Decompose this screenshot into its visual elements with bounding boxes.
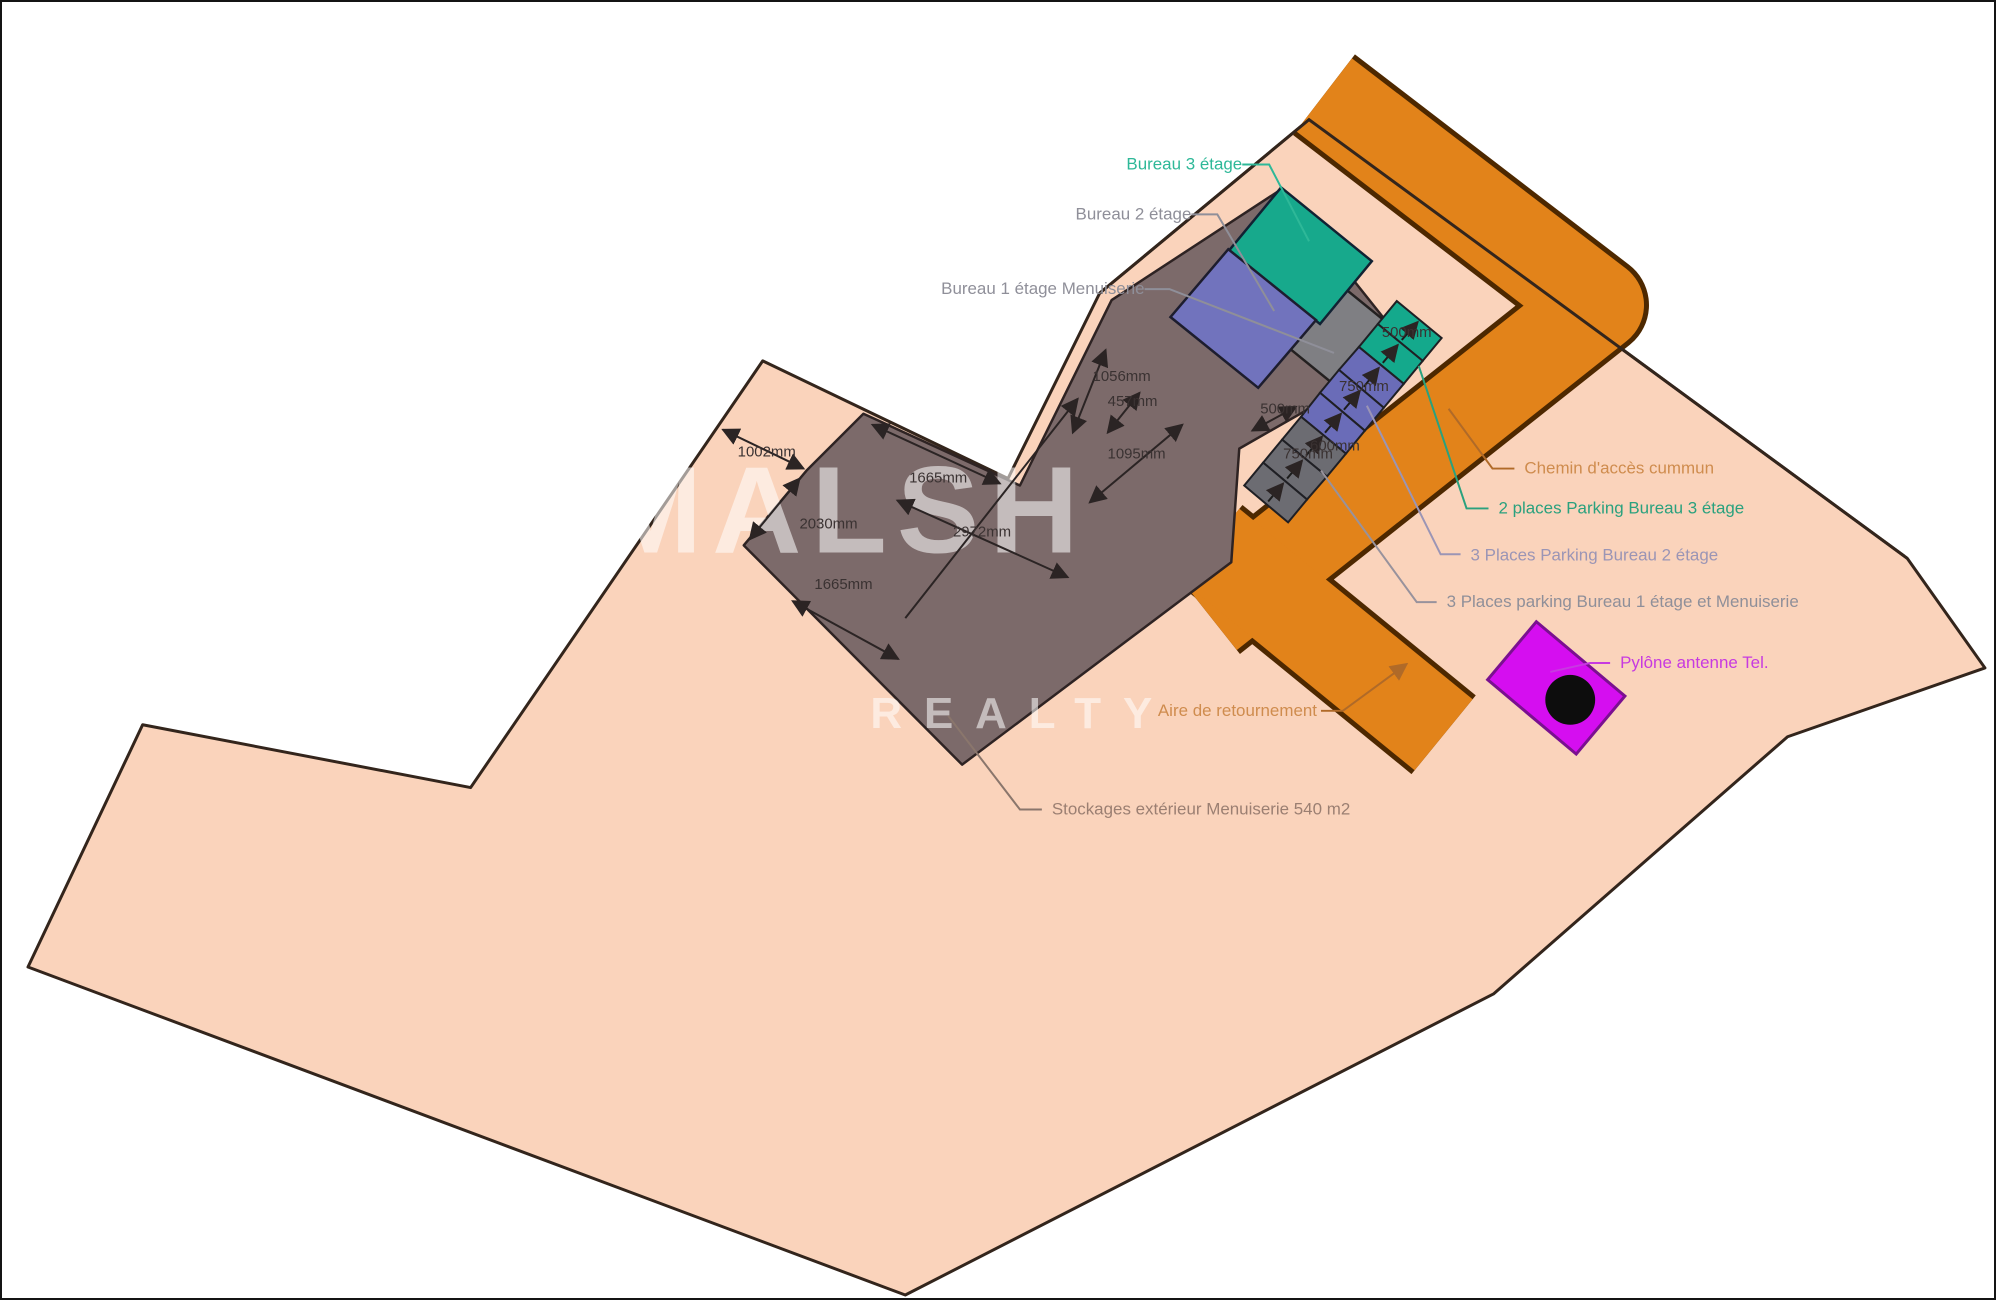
watermark-line2: REALTY bbox=[870, 689, 1174, 738]
parking-b2-label: 3 Places Parking Bureau 2 étage bbox=[1471, 545, 1719, 564]
parking-b3-label: 2 places Parking Bureau 3 étage bbox=[1498, 498, 1744, 517]
pylon-antenna-icon bbox=[1545, 675, 1595, 725]
dim-1665-bottom: 1665mm bbox=[814, 576, 872, 593]
dim-750-parking-b2: 750mm bbox=[1339, 378, 1389, 395]
site-plan-page: MALSH REALTY bbox=[0, 0, 1996, 1300]
dim-1002: 1002mm bbox=[738, 444, 796, 461]
bureau3-label: Bureau 3 étage bbox=[1126, 154, 1242, 173]
dim-2030: 2030mm bbox=[799, 515, 857, 532]
bureau1-label: Bureau 1 étage Menuiserie bbox=[941, 279, 1144, 298]
dim-500-gap: 500mm bbox=[1260, 401, 1310, 418]
stockages-label: Stockages extérieur Menuiserie 540 m2 bbox=[1052, 799, 1350, 818]
site-plan-drawing: MALSH REALTY bbox=[2, 2, 1994, 1298]
dim-750-parking-b1: 750mm bbox=[1283, 446, 1333, 463]
dim-2972: 2972mm bbox=[953, 523, 1011, 540]
watermark-line1: MALSH bbox=[599, 441, 1088, 579]
parking-b1-label: 3 Places parking Bureau 1 étage et Menui… bbox=[1447, 592, 1799, 611]
chemin-label: Chemin d'accès cummun bbox=[1524, 459, 1714, 478]
pylon-label: Pylône antenne Tel. bbox=[1620, 653, 1768, 672]
dim-1665-top: 1665mm bbox=[909, 470, 967, 487]
dim-1056: 1056mm bbox=[1093, 368, 1151, 385]
dim-457: 457mm bbox=[1108, 393, 1158, 410]
bureau2-label: Bureau 2 étage bbox=[1076, 204, 1192, 223]
aire-label: Aire de retournement bbox=[1158, 701, 1317, 720]
dim-500-parking-b3: 500mm bbox=[1382, 324, 1432, 341]
dim-1095: 1095mm bbox=[1108, 446, 1166, 463]
